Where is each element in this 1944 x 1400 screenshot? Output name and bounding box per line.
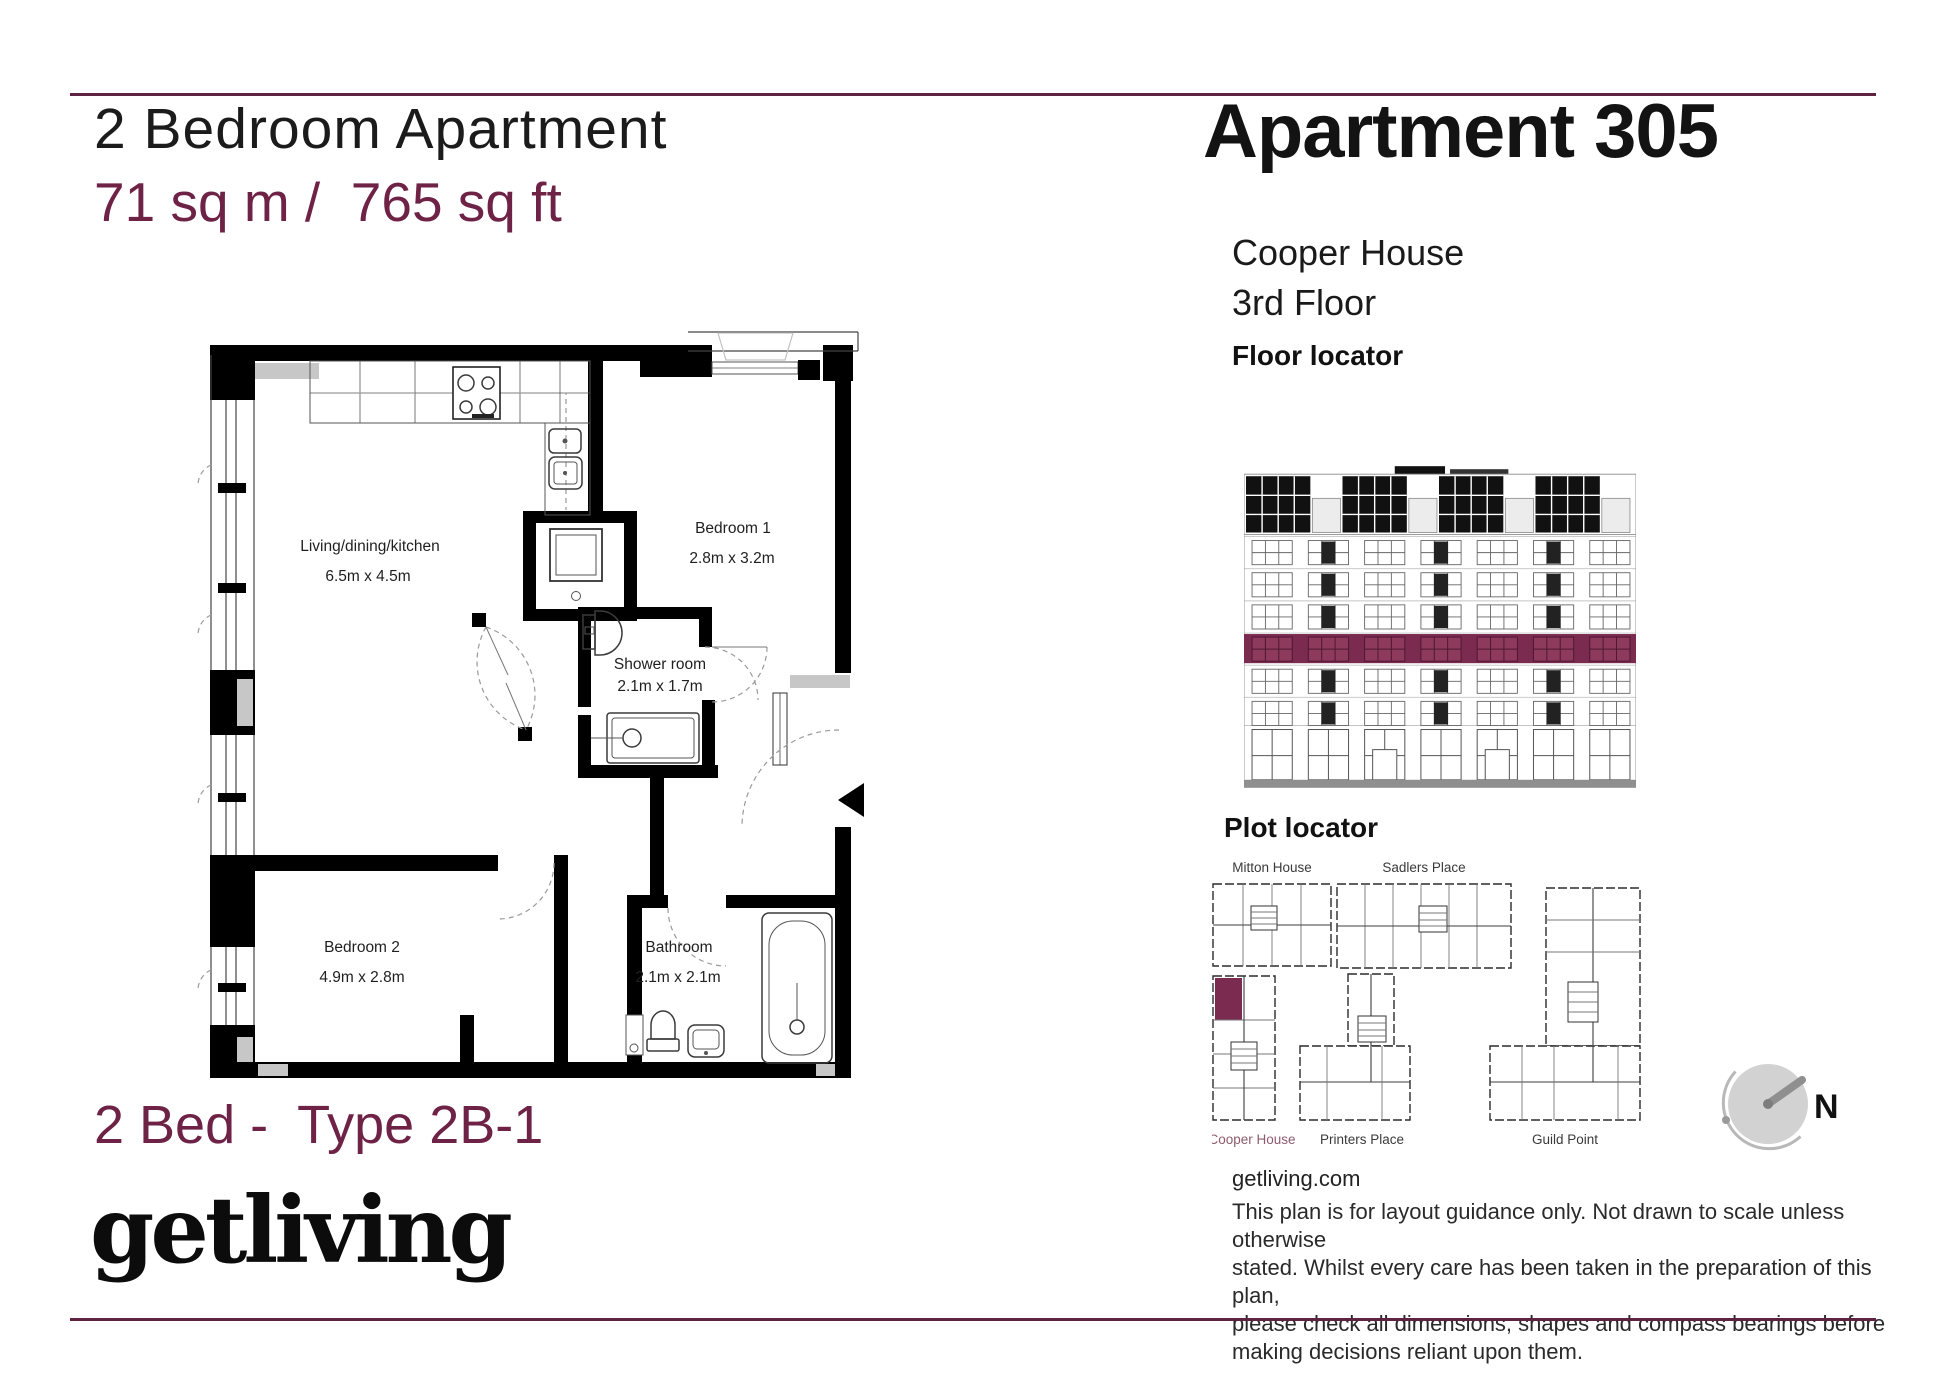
compass-icon: N xyxy=(1716,1050,1846,1160)
plot-building-mitton xyxy=(1213,884,1331,966)
room-dims-shower: 2.1m x 1.7m xyxy=(617,678,702,695)
plot-building-cooper xyxy=(1213,976,1275,1120)
room-dims-living: 6.5m x 4.5m xyxy=(325,568,410,585)
disclaimer-line: stated. Whilst every care has been taken… xyxy=(1232,1254,1892,1310)
room-dims-bathroom: 2.1m x 2.1m xyxy=(635,969,720,986)
plot-building-guild xyxy=(1490,888,1640,1120)
room-label-bathroom: Bathroom xyxy=(645,939,712,956)
plot-label-mitton: Mitton House xyxy=(1232,860,1312,875)
disclaimer-line: making decisions reliant upon them. xyxy=(1232,1338,1892,1366)
room-dims-bedroom2: 4.9m x 2.8m xyxy=(319,969,404,986)
elevation-highlighted-floor xyxy=(1244,634,1636,663)
plot-label-sadlers: Sadlers Place xyxy=(1382,860,1465,875)
compass-north-label: N xyxy=(1814,1088,1839,1126)
highlighted-apartment-unit xyxy=(1215,978,1242,1020)
website-link[interactable]: getliving.com xyxy=(1232,1166,1360,1192)
bathroom-fixtures xyxy=(626,913,832,1063)
bathroom-sink-icon xyxy=(688,1025,724,1057)
hob-icon xyxy=(453,367,500,419)
floor-plan-drawing: Living/dining/kitchen 6.5m x 4.5m Bedroo… xyxy=(195,315,885,1095)
apartment-floor: 3rd Floor xyxy=(1232,282,1376,324)
kitchen-counter xyxy=(255,361,590,515)
entrance-arrow-icon xyxy=(838,783,864,817)
bottom-divider xyxy=(70,1318,1876,1321)
elevation-ground-line xyxy=(1244,780,1636,788)
floor-locator-heading: Floor locator xyxy=(1232,340,1403,372)
plan-walls xyxy=(198,345,853,1078)
plot-label-printers: Printers Place xyxy=(1320,1132,1404,1147)
plot-building-printers xyxy=(1300,974,1410,1120)
utility-closet xyxy=(550,529,602,601)
disclaimer-line: please check all dimensions, shapes and … xyxy=(1232,1310,1892,1338)
plot-label-cooper: Cooper House xyxy=(1212,1132,1296,1147)
disclaimer-line: This plan is for layout guidance only. N… xyxy=(1232,1198,1892,1254)
toilet-icon xyxy=(647,1011,679,1051)
room-label-bedroom1: Bedroom 1 xyxy=(695,520,771,537)
room-label-living: Living/dining/kitchen xyxy=(300,538,440,555)
apartment-building: Cooper House xyxy=(1232,232,1464,274)
apartment-type-label: 2 Bed - Type 2B-1 xyxy=(94,1094,543,1156)
apartment-number: Apartment 305 xyxy=(1203,88,1718,175)
page-title: 2 Bedroom Apartment xyxy=(94,96,667,162)
getliving-logo: getliving xyxy=(90,1176,509,1284)
room-label-bedroom2: Bedroom 2 xyxy=(324,939,400,956)
disclaimer-text: This plan is for layout guidance only. N… xyxy=(1232,1198,1892,1366)
room-label-shower: Shower room xyxy=(614,656,706,673)
elevation-penthouse xyxy=(1244,466,1636,534)
shower-tray-icon xyxy=(591,713,699,763)
plot-locator-heading: Plot locator xyxy=(1224,812,1378,844)
plot-label-guild: Guild Point xyxy=(1532,1132,1598,1147)
apartment-area: 71 sq m / 765 sq ft xyxy=(94,170,562,234)
room-dims-bedroom1: 2.8m x 3.2m xyxy=(689,550,774,567)
bathtub-icon xyxy=(762,913,832,1063)
entrance xyxy=(773,693,864,817)
floor-locator-elevation xyxy=(1244,466,1636,790)
elevation-ground-floor xyxy=(1252,730,1630,780)
floorplan-page: 2 Bedroom Apartment 71 sq m / 765 sq ft … xyxy=(0,0,1944,1400)
plot-building-sadlers xyxy=(1337,884,1511,968)
